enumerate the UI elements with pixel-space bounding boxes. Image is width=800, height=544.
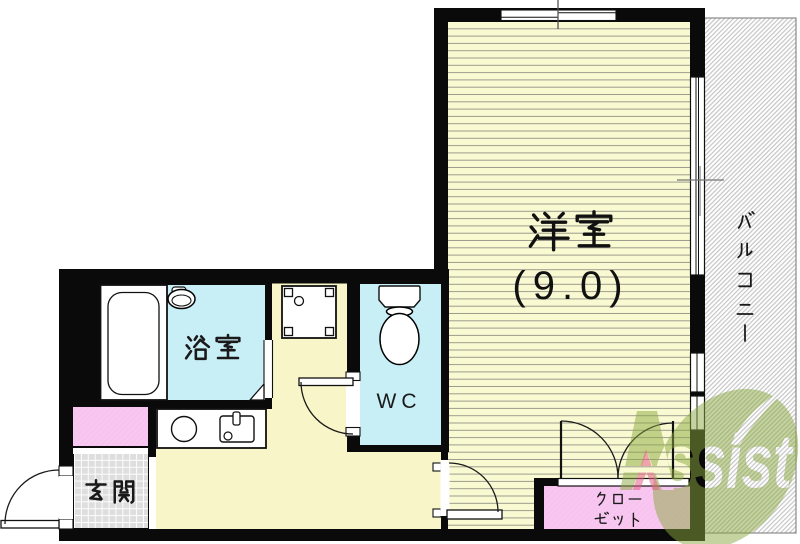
svg-text:ssist: ssist	[664, 419, 794, 504]
svg-text:WC: WC	[377, 390, 422, 413]
svg-text:(9.0): (9.0)	[512, 264, 629, 308]
